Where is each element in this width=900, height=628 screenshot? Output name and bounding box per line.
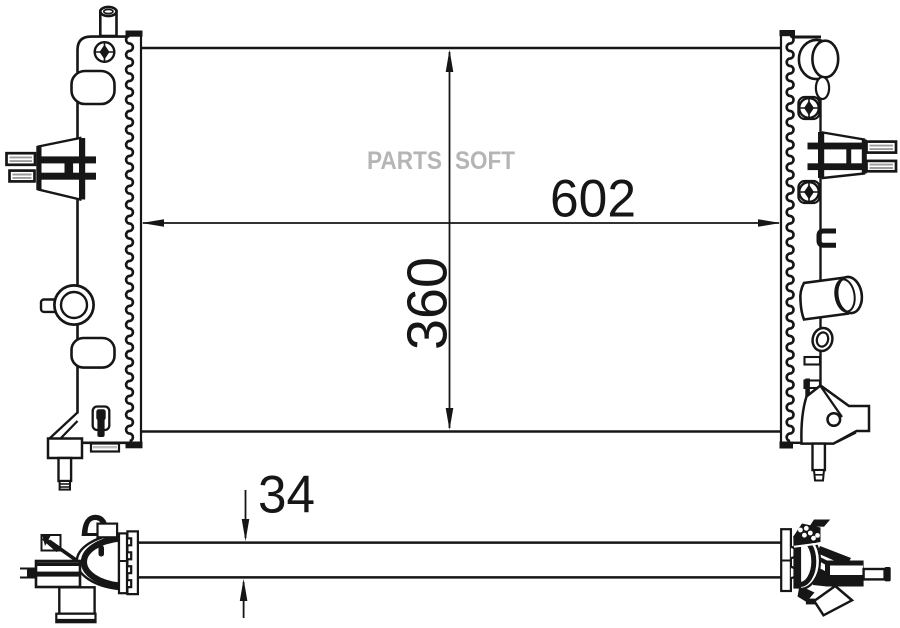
svg-text:34: 34: [258, 466, 315, 525]
svg-text:SOFT: SOFT: [455, 147, 515, 175]
svg-text:PARTS: PARTS: [367, 147, 442, 175]
svg-text:602: 602: [550, 170, 636, 229]
svg-text:360: 360: [396, 257, 460, 350]
